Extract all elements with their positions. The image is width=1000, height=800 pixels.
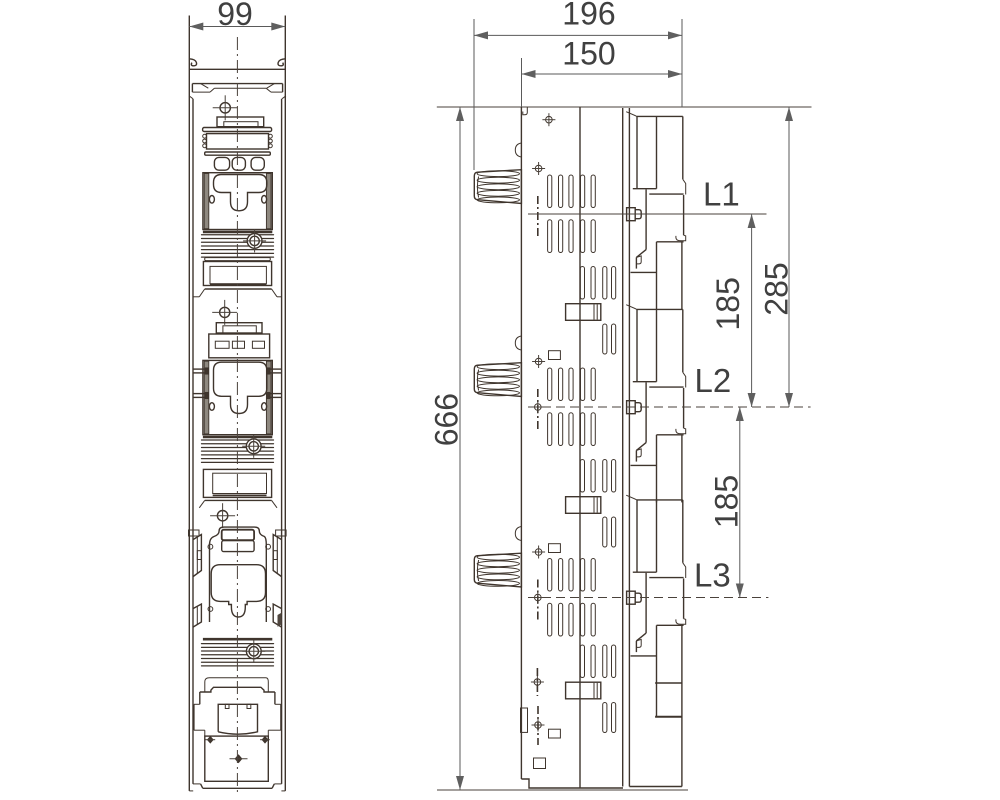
svg-text:99: 99: [217, 0, 253, 32]
svg-text:L3: L3: [694, 557, 731, 594]
svg-text:L2: L2: [695, 362, 732, 399]
svg-text:L1: L1: [703, 176, 740, 213]
svg-text:185: 185: [708, 475, 744, 528]
svg-text:150: 150: [562, 35, 615, 71]
svg-text:666: 666: [429, 393, 465, 446]
svg-text:185: 185: [710, 277, 746, 330]
svg-text:196: 196: [562, 0, 615, 32]
svg-text:285: 285: [758, 262, 794, 315]
